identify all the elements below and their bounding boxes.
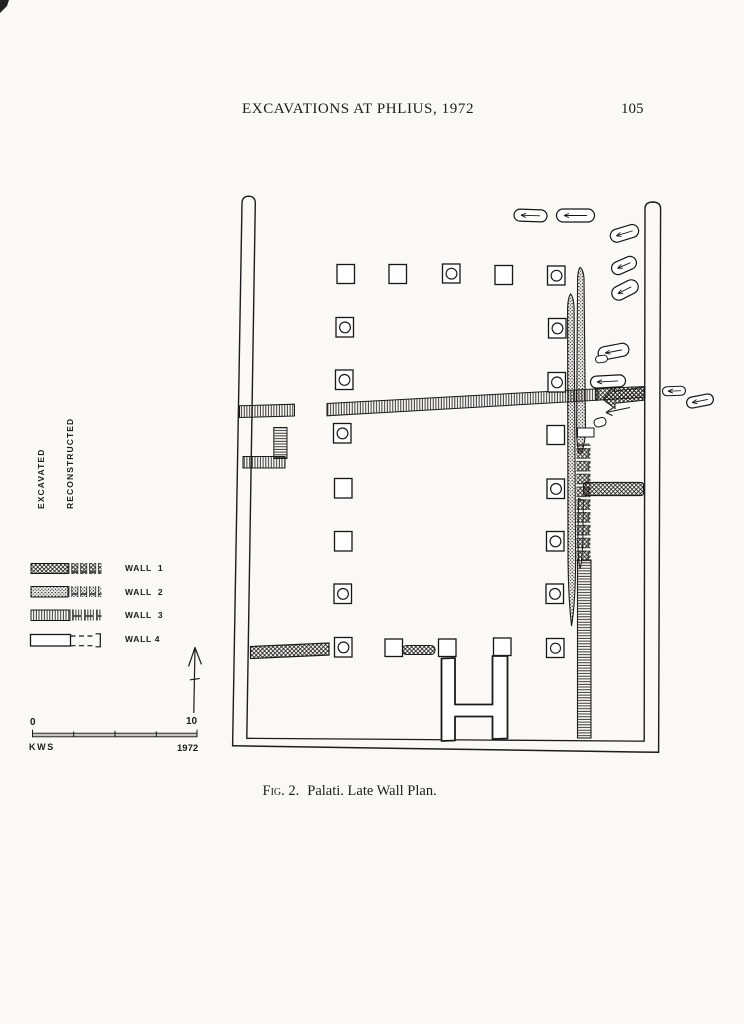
thin-line-arrow xyxy=(606,408,630,416)
column-base xyxy=(548,266,566,285)
column-base xyxy=(546,584,564,604)
east-boundary-wall xyxy=(644,202,660,752)
central-stipple-wall-west xyxy=(568,294,576,626)
central-block-wall xyxy=(577,444,591,564)
column-base xyxy=(547,639,565,658)
journal-page: EXCAVATIONS AT PHLIUS, 1972 105 xyxy=(0,0,744,1024)
fallen-block xyxy=(686,393,715,409)
legend-reconstructed-label: RECONSTRUCTED xyxy=(65,418,75,509)
column-base xyxy=(439,639,457,657)
fallen-block xyxy=(590,375,626,389)
legend-excavated-label: EXCAVATED xyxy=(36,449,46,509)
column-base xyxy=(547,532,565,552)
fallen-block xyxy=(595,355,608,364)
column-base xyxy=(547,426,565,445)
central-stipple-wall-east xyxy=(577,268,586,454)
column-base xyxy=(334,584,352,604)
legend-swatches xyxy=(31,563,102,647)
column-base xyxy=(548,373,566,393)
legend-wall4-swatch xyxy=(31,634,101,647)
scale-end-label: 10 xyxy=(186,716,197,727)
figure-caption-text: Palati. Late Wall Plan. xyxy=(307,783,436,799)
column-base xyxy=(547,479,565,499)
small-outline-stub xyxy=(578,428,595,437)
south-row-wall-segment xyxy=(403,646,436,655)
legend-wall4-label: WALL 4 xyxy=(125,634,160,644)
fallen-block xyxy=(609,254,638,276)
column-base xyxy=(335,532,353,552)
fallen-block xyxy=(514,209,547,222)
central-south-wall xyxy=(578,560,592,738)
long-cross-wall xyxy=(327,389,598,416)
column-base xyxy=(336,318,354,338)
legend-wall1-label: WALL 1 xyxy=(125,563,163,573)
column-base xyxy=(335,479,353,499)
west-wall-stub xyxy=(240,404,295,417)
east-wall-stub xyxy=(584,483,644,496)
legend-wall2-swatch xyxy=(31,586,102,597)
l-wall-horizontal-part xyxy=(243,457,285,469)
scale-year: 1972 xyxy=(177,743,198,754)
column-base xyxy=(385,639,403,657)
southwest-wall xyxy=(251,643,330,659)
figure-caption-number: Fig. 2. xyxy=(263,783,300,799)
legend-wall2-label: WALL 2 xyxy=(125,587,163,597)
column-base xyxy=(337,265,355,284)
scale-bar xyxy=(33,730,198,738)
legend-wall1-swatch xyxy=(31,563,102,574)
wall3-hatched-segments xyxy=(240,389,599,738)
fallen-block xyxy=(593,417,607,428)
scale-start-label: 0 xyxy=(30,717,36,728)
h-shaped-wall xyxy=(442,656,508,741)
north-arrow-icon xyxy=(189,648,202,713)
fallen-block xyxy=(557,209,595,222)
late-wall-plan-drawing xyxy=(0,0,744,1024)
legend-wall3-label: WALL 3 xyxy=(125,610,163,620)
column-base xyxy=(389,265,407,284)
colonnade-column-bases xyxy=(334,264,567,658)
west-boundary-wall xyxy=(233,196,256,746)
fallen-block xyxy=(662,386,685,396)
column-base xyxy=(335,638,353,658)
scale-initials: KWS xyxy=(29,742,55,752)
column-base xyxy=(336,370,354,390)
south-boundary-outer-line xyxy=(233,746,659,753)
l-wall-vertical-part xyxy=(274,428,287,459)
fallen-block xyxy=(609,277,640,302)
fallen-block xyxy=(609,223,641,244)
column-base xyxy=(549,319,567,339)
column-base xyxy=(334,424,352,444)
column-base xyxy=(494,638,512,656)
column-base xyxy=(495,266,513,285)
figure-caption: Fig. 2.Palati. Late Wall Plan. xyxy=(248,766,437,817)
column-base xyxy=(443,264,461,283)
legend-wall3-swatch xyxy=(31,610,102,621)
